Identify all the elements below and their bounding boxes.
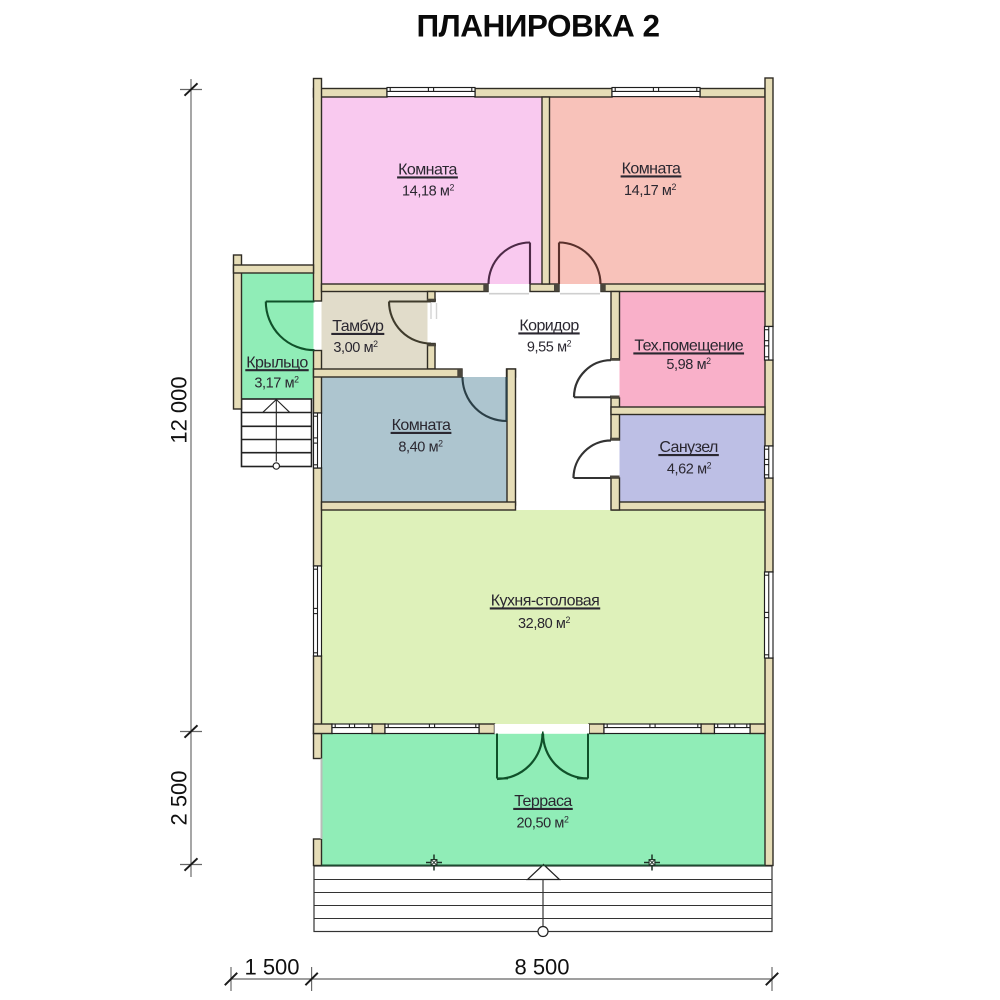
svg-text:Крыльцо: Крыльцо: [246, 354, 308, 371]
svg-text:Комната: Комната: [622, 161, 681, 178]
svg-text:3,17 м2: 3,17 м2: [254, 375, 299, 392]
svg-text:Терраса: Терраса: [514, 793, 572, 810]
svg-text:Комната: Комната: [392, 417, 451, 434]
svg-text:2 500: 2 500: [167, 770, 192, 825]
svg-text:4,62 м2: 4,62 м2: [667, 461, 712, 478]
svg-text:Санузел: Санузел: [659, 439, 718, 456]
svg-text:12 000: 12 000: [167, 376, 192, 443]
svg-text:Тех.помещение: Тех.помещение: [634, 338, 743, 355]
svg-text:8 500: 8 500: [514, 955, 569, 980]
svg-text:8,40 м2: 8,40 м2: [398, 439, 443, 456]
svg-text:Коридор: Коридор: [519, 318, 579, 335]
svg-text:3,00 м2: 3,00 м2: [333, 339, 378, 356]
svg-text:20,50 м2: 20,50 м2: [517, 815, 569, 832]
svg-text:ПЛАНИРОВКА 2: ПЛАНИРОВКА 2: [417, 8, 660, 44]
svg-text:14,18 м2: 14,18 м2: [402, 183, 454, 200]
svg-text:Тамбур: Тамбур: [332, 318, 384, 335]
svg-text:14,17 м2: 14,17 м2: [624, 182, 676, 199]
svg-text:Кухня-столовая: Кухня-столовая: [491, 593, 599, 610]
svg-text:32,80 м2: 32,80 м2: [518, 615, 570, 632]
svg-text:1 500: 1 500: [244, 955, 299, 980]
svg-text:5,98 м2: 5,98 м2: [666, 356, 711, 373]
svg-text:Комната: Комната: [398, 162, 457, 179]
svg-text:9,55 м2: 9,55 м2: [527, 339, 572, 356]
